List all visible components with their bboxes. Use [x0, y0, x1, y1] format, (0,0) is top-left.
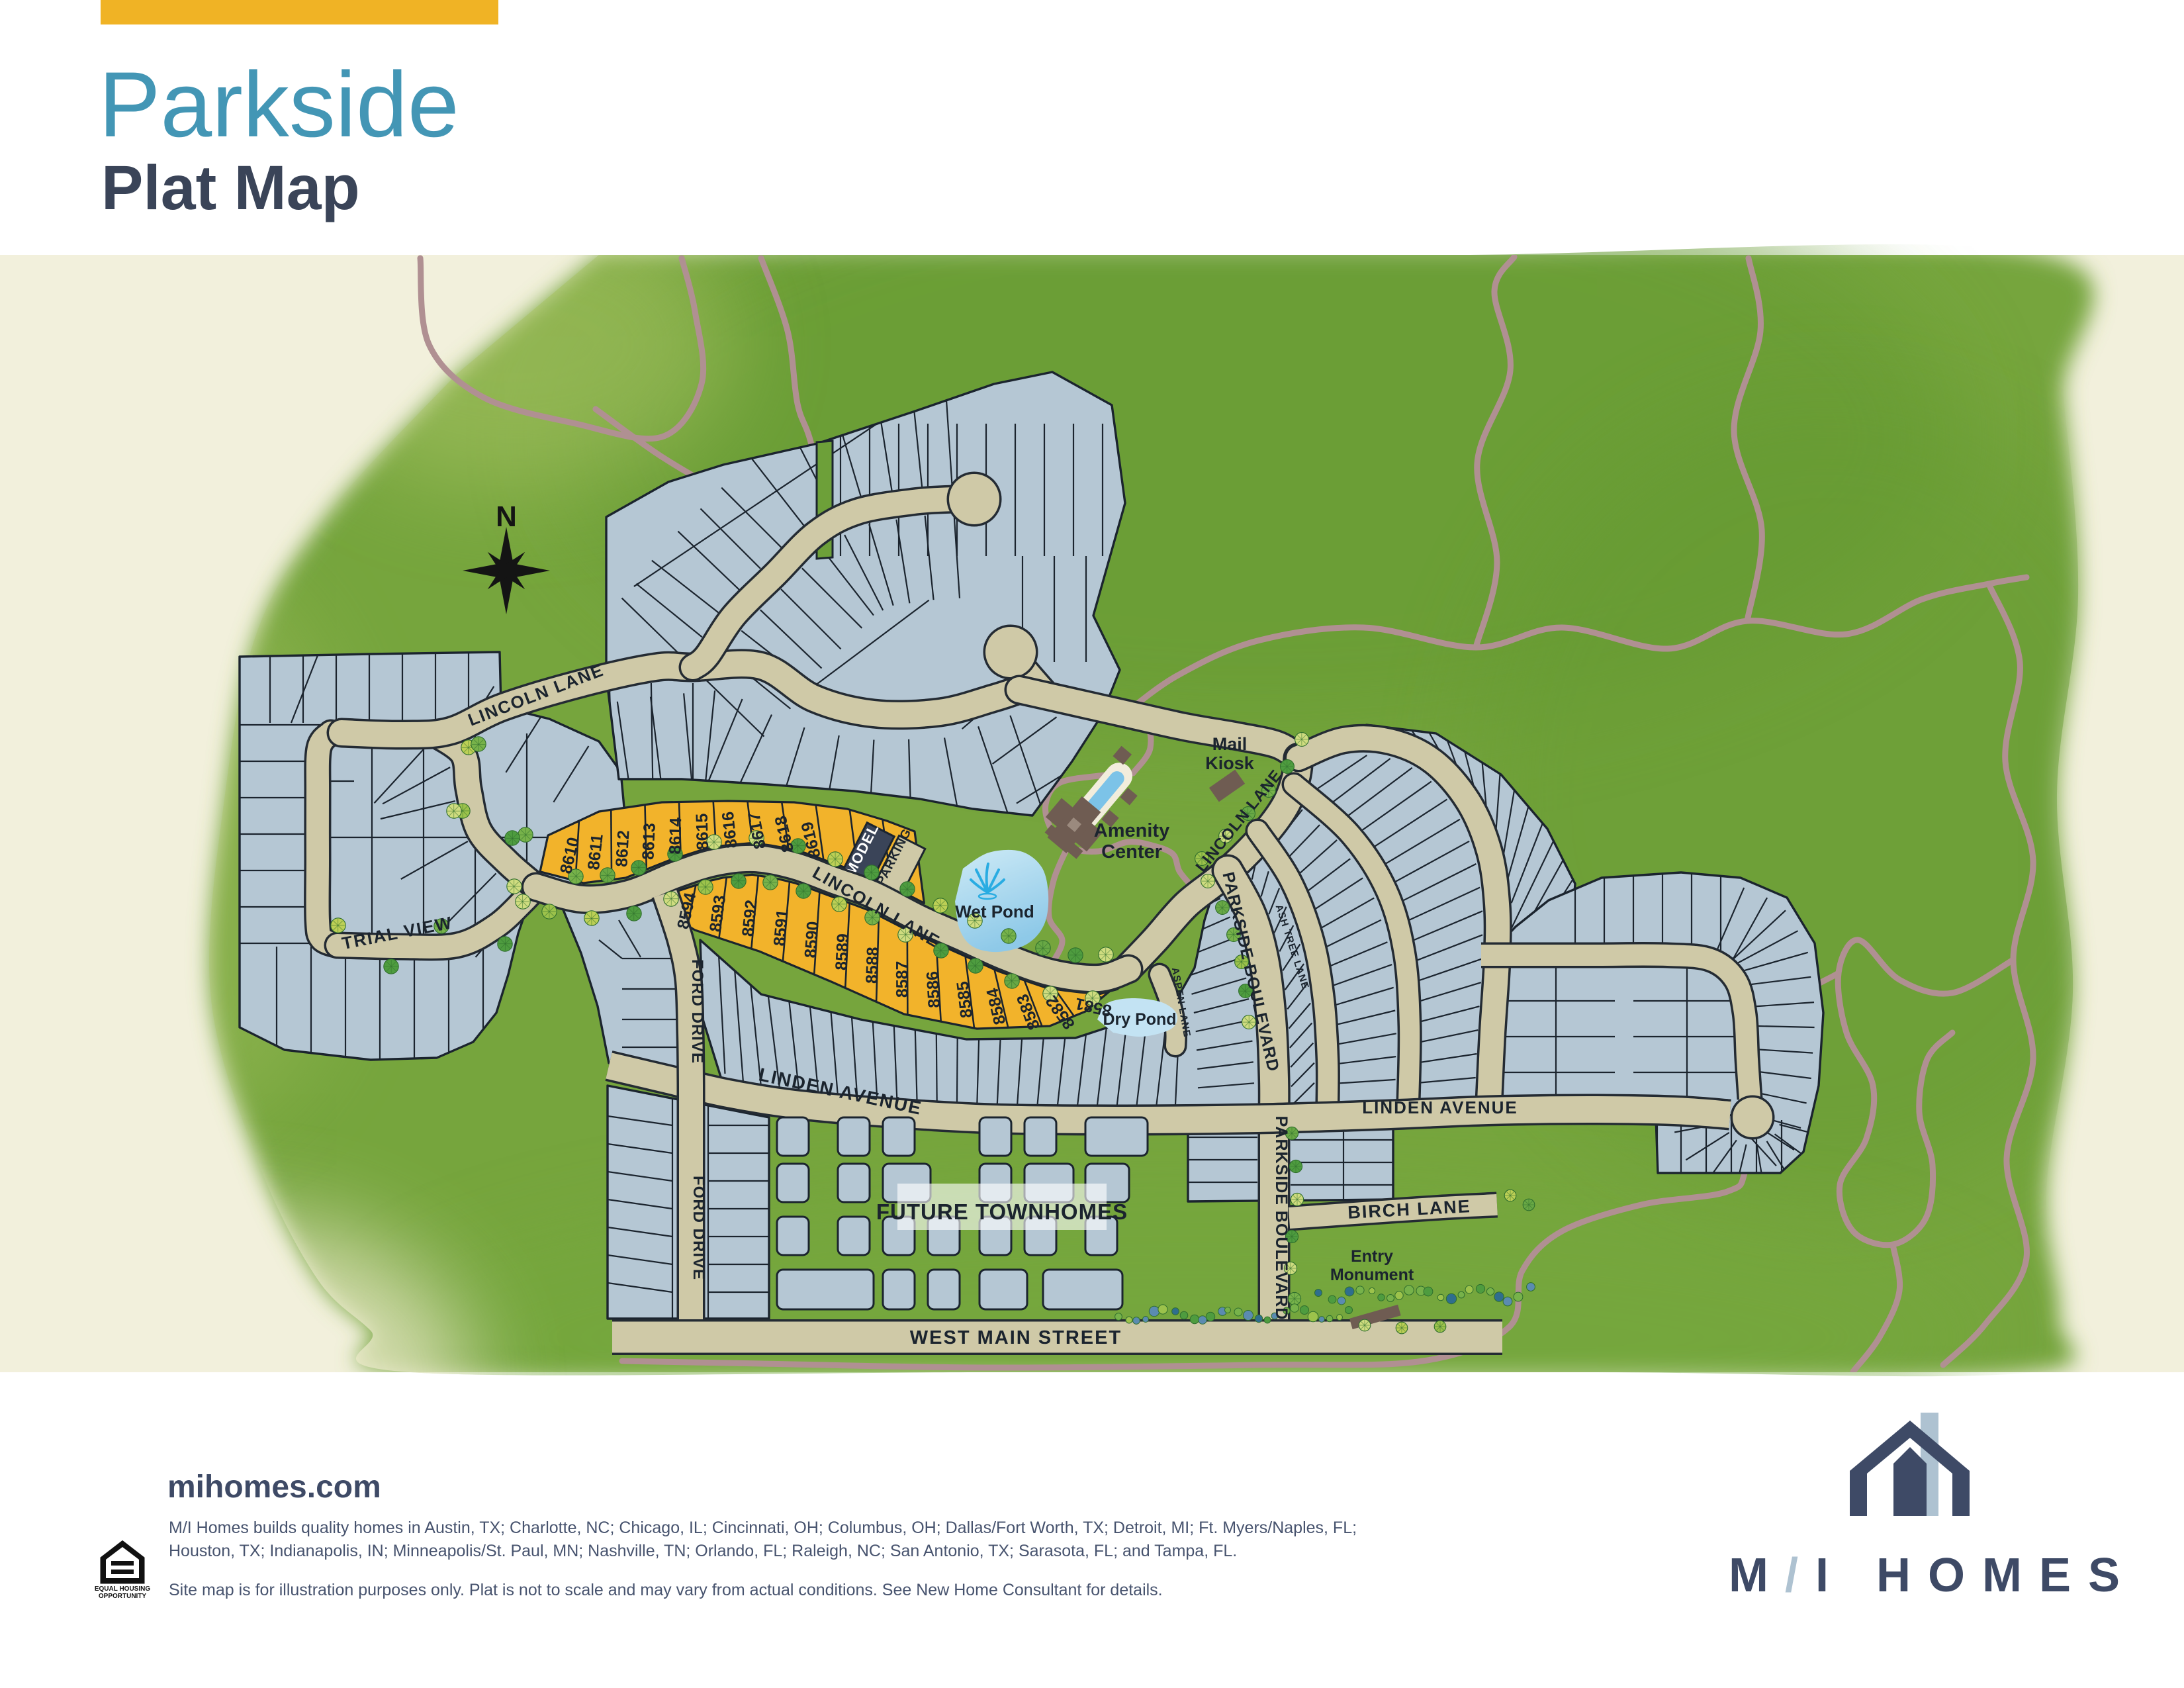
svg-text:Dry Pond: Dry Pond — [1103, 1010, 1176, 1029]
svg-text:8588: 8588 — [862, 947, 882, 984]
svg-text:8612: 8612 — [612, 829, 633, 867]
svg-text:Wet Pond: Wet Pond — [955, 902, 1034, 921]
svg-text:WEST MAIN STREET: WEST MAIN STREET — [910, 1327, 1122, 1348]
svg-text:Amenity: Amenity — [1094, 820, 1169, 841]
svg-text:Plat Map: Plat Map — [101, 153, 360, 223]
svg-text:FORD DRIVE: FORD DRIVE — [688, 959, 706, 1064]
svg-text:8591: 8591 — [770, 908, 792, 947]
svg-text:Center: Center — [1101, 841, 1162, 863]
svg-text:8587: 8587 — [893, 961, 911, 998]
svg-text:LINDEN AVENUE: LINDEN AVENUE — [1362, 1098, 1518, 1117]
svg-text:Site map is for illustration p: Site map is for illustration purposes on… — [169, 1581, 1163, 1599]
svg-text:FORD DRIVE: FORD DRIVE — [690, 1176, 707, 1280]
svg-text:M: M — [1729, 1549, 1786, 1602]
svg-text:8616: 8616 — [719, 811, 741, 849]
svg-text:8592: 8592 — [739, 899, 761, 937]
svg-text:Entry: Entry — [1351, 1247, 1393, 1266]
svg-text:8590: 8590 — [801, 921, 823, 959]
svg-text:/: / — [1785, 1549, 1815, 1602]
svg-text:I HOMES: I HOMES — [1815, 1549, 2137, 1602]
svg-text:OPPORTUNITY: OPPORTUNITY — [99, 1593, 147, 1600]
svg-text:Parkside: Parkside — [99, 52, 459, 156]
svg-text:mihomes.com: mihomes.com — [167, 1470, 381, 1505]
svg-text:8615: 8615 — [693, 813, 713, 850]
svg-text:8613: 8613 — [639, 823, 659, 861]
svg-text:8586: 8586 — [923, 970, 944, 1008]
svg-text:Monument: Monument — [1330, 1266, 1414, 1284]
svg-text:EQUAL HOUSING: EQUAL HOUSING — [95, 1585, 150, 1593]
svg-text:8589: 8589 — [832, 933, 852, 971]
svg-text:PARKSIDE BOULEVARD: PARKSIDE BOULEVARD — [1272, 1116, 1291, 1321]
svg-text:8614: 8614 — [666, 818, 685, 855]
svg-text:Mail: Mail — [1212, 734, 1248, 754]
svg-text:M/I Homes builds quality homes: M/I Homes builds quality homes in Austin… — [169, 1519, 1357, 1537]
svg-text:FUTURE TOWNHOMES: FUTURE TOWNHOMES — [876, 1199, 1128, 1224]
svg-text:N: N — [496, 500, 517, 533]
svg-text:Houston, TX; Indianapolis, IN;: Houston, TX; Indianapolis, IN; Minneapol… — [169, 1542, 1237, 1560]
svg-text:Kiosk: Kiosk — [1205, 753, 1255, 773]
